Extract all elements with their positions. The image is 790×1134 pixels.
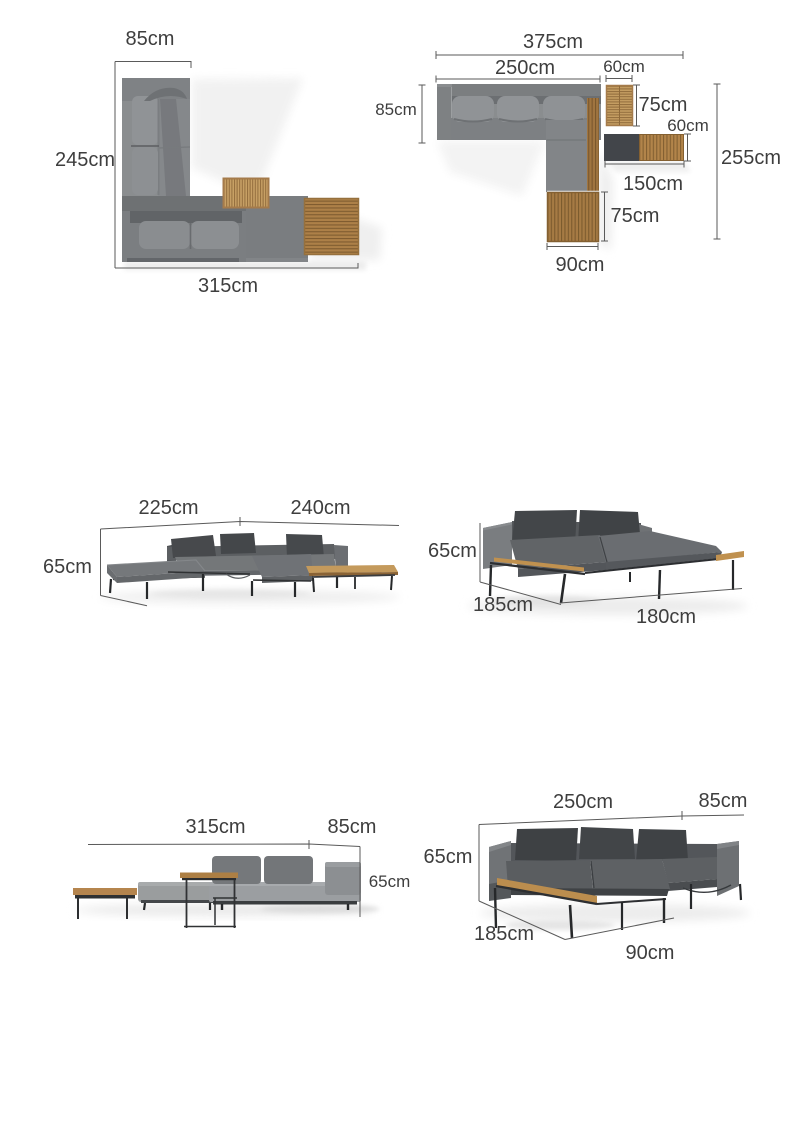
svg-text:85cm: 85cm (328, 816, 377, 838)
svg-text:75cm: 75cm (611, 205, 660, 227)
svg-text:250cm: 250cm (495, 57, 555, 79)
svg-text:150cm: 150cm (623, 173, 683, 195)
svg-text:85cm: 85cm (375, 100, 417, 119)
svg-text:65cm: 65cm (369, 872, 411, 891)
svg-text:185cm: 185cm (473, 594, 533, 616)
svg-text:255cm: 255cm (721, 147, 781, 169)
svg-text:245cm: 245cm (55, 149, 115, 171)
svg-text:250cm: 250cm (553, 791, 613, 813)
svg-text:65cm: 65cm (43, 556, 92, 578)
svg-text:90cm: 90cm (556, 254, 605, 276)
svg-text:185cm: 185cm (474, 923, 534, 945)
svg-text:240cm: 240cm (290, 497, 350, 519)
svg-text:315cm: 315cm (185, 816, 245, 838)
svg-text:315cm: 315cm (198, 275, 258, 297)
svg-text:225cm: 225cm (138, 497, 198, 519)
svg-text:90cm: 90cm (626, 942, 675, 964)
svg-text:60cm: 60cm (667, 116, 709, 135)
svg-text:75cm: 75cm (639, 94, 688, 116)
svg-text:85cm: 85cm (699, 790, 748, 812)
svg-text:65cm: 65cm (428, 540, 477, 562)
svg-text:180cm: 180cm (636, 606, 696, 628)
svg-text:65cm: 65cm (424, 846, 473, 868)
svg-text:60cm: 60cm (603, 57, 645, 76)
svg-text:375cm: 375cm (523, 31, 583, 53)
svg-text:85cm: 85cm (126, 28, 175, 50)
